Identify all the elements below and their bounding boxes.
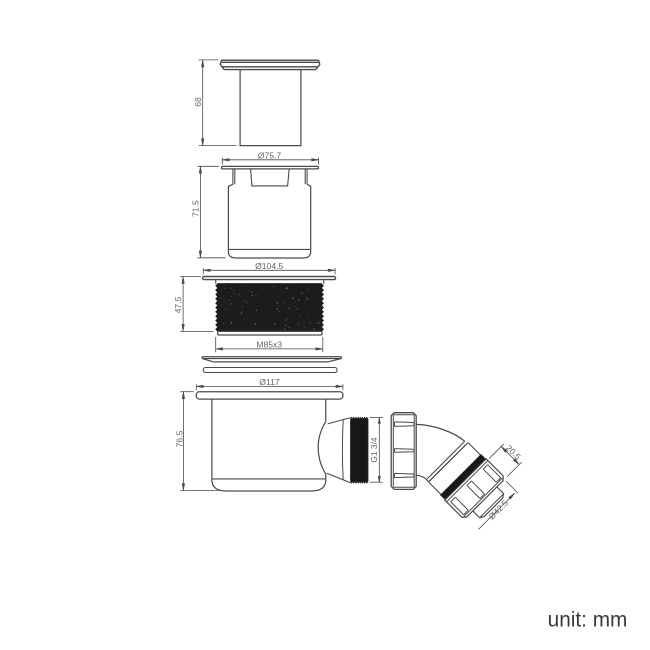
- svg-text:Ø117: Ø117: [259, 377, 280, 387]
- svg-text:71.5: 71.5: [191, 200, 201, 217]
- svg-text:76.5: 76.5: [174, 430, 184, 447]
- svg-text:unit: mm: unit: mm: [548, 609, 628, 632]
- svg-text:Ø104.5: Ø104.5: [255, 261, 283, 271]
- svg-text:G1 3/4: G1 3/4: [369, 437, 379, 462]
- svg-text:20.5: 20.5: [504, 443, 523, 462]
- svg-text:47.5: 47.5: [173, 296, 183, 313]
- svg-text:68: 68: [193, 97, 203, 107]
- svg-text:M85x3: M85x3: [256, 339, 282, 349]
- svg-text:Ø75.7: Ø75.7: [258, 150, 282, 160]
